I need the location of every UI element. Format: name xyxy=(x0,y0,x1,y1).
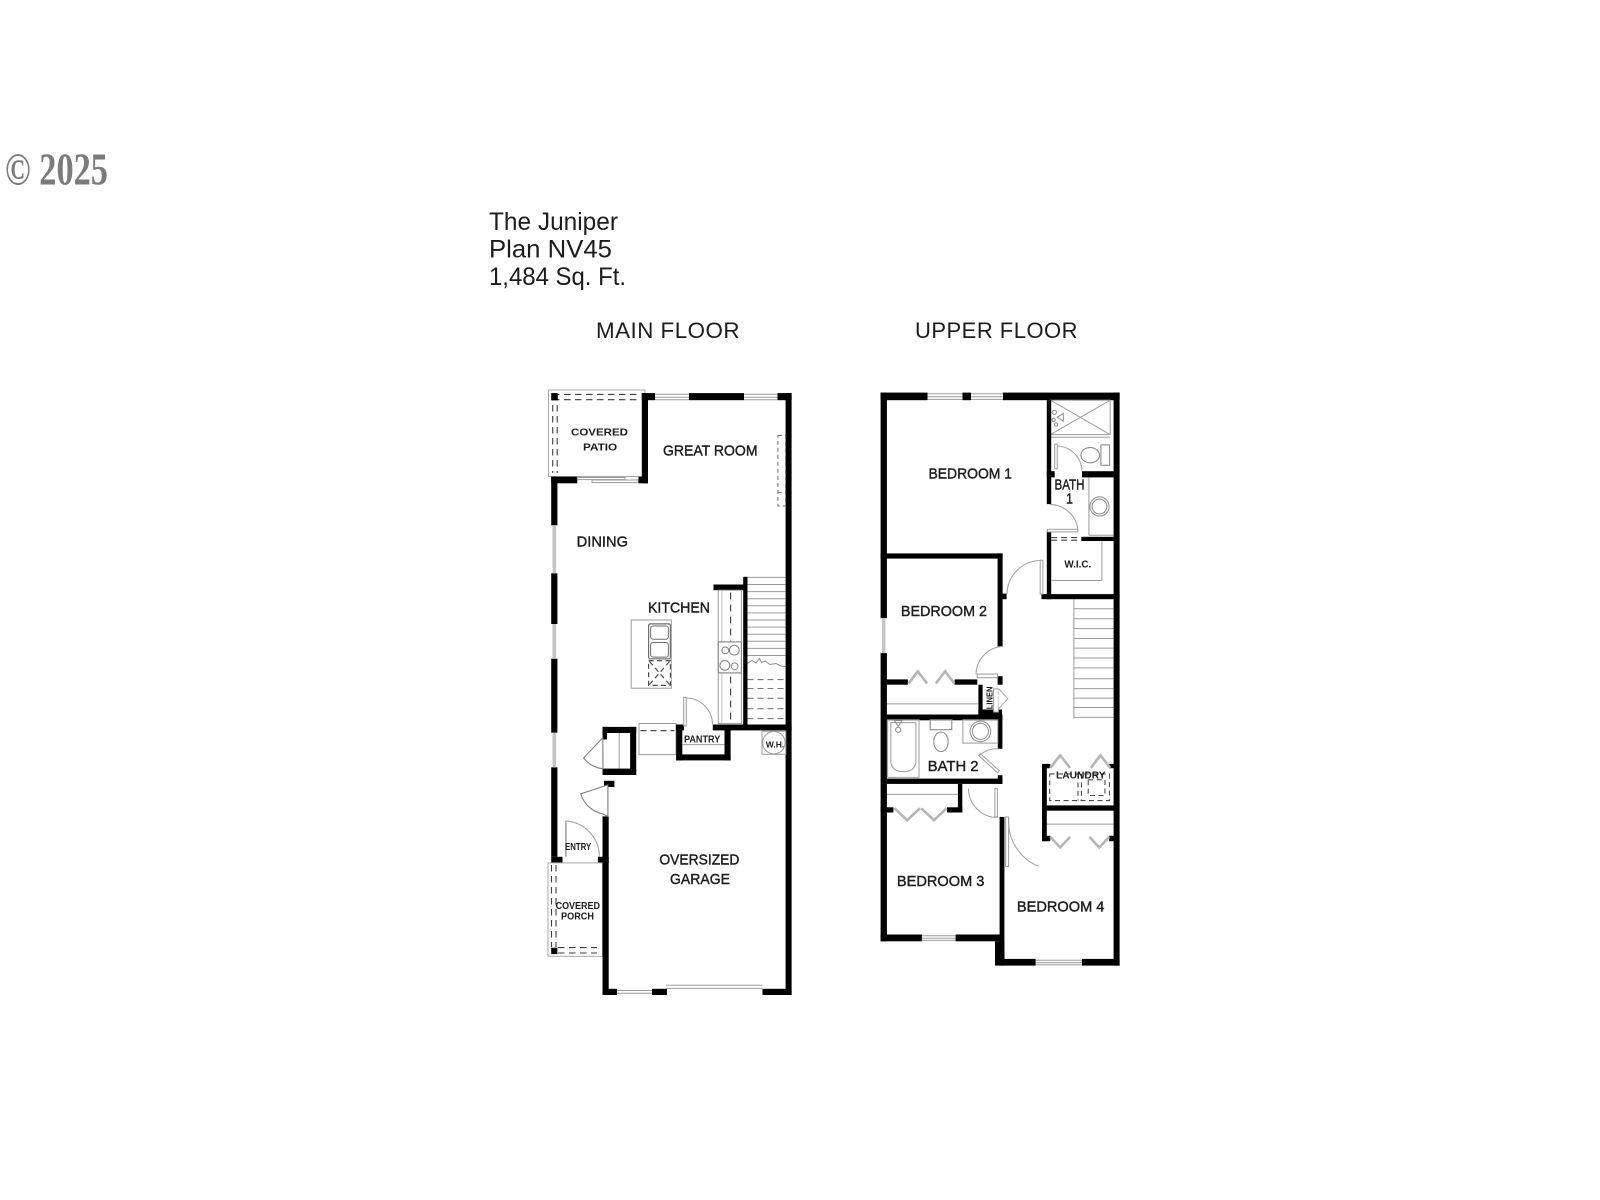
svg-text:BEDROOM 4: BEDROOM 4 xyxy=(1017,899,1105,915)
svg-text:UPPER FLOOR: UPPER FLOOR xyxy=(915,318,1078,343)
svg-text:OVERSIZED: OVERSIZED xyxy=(659,852,739,868)
svg-text:COVERED: COVERED xyxy=(571,428,628,439)
svg-text:LAUNDRY: LAUNDRY xyxy=(1056,771,1106,782)
svg-text:The Juniper: The Juniper xyxy=(489,208,618,236)
svg-text:W.H.: W.H. xyxy=(766,740,785,750)
svg-text:BATH 2: BATH 2 xyxy=(928,759,979,775)
svg-text:PATIO: PATIO xyxy=(583,442,617,453)
svg-text:DINING: DINING xyxy=(577,534,628,550)
svg-text:LINEN: LINEN xyxy=(984,687,994,710)
svg-text:BEDROOM 1: BEDROOM 1 xyxy=(929,467,1013,483)
svg-text:ENTRY: ENTRY xyxy=(565,842,592,853)
svg-text:1,484 Sq. Ft.: 1,484 Sq. Ft. xyxy=(489,263,626,291)
svg-text:GARAGE: GARAGE xyxy=(670,872,730,888)
svg-text:W.I.C.: W.I.C. xyxy=(1064,560,1091,571)
svg-text:1: 1 xyxy=(1066,491,1073,507)
svg-text:© 2025: © 2025 xyxy=(5,145,108,195)
svg-text:MAIN FLOOR: MAIN FLOOR xyxy=(596,318,740,343)
svg-text:PANTRY: PANTRY xyxy=(684,734,721,745)
svg-text:KITCHEN: KITCHEN xyxy=(648,601,710,617)
svg-text:COVERED: COVERED xyxy=(556,901,600,912)
svg-text:BEDROOM 2: BEDROOM 2 xyxy=(901,604,987,620)
svg-text:GREAT ROOM: GREAT ROOM xyxy=(663,444,758,460)
svg-text:Plan NV45: Plan NV45 xyxy=(489,236,612,264)
svg-text:BEDROOM 3: BEDROOM 3 xyxy=(897,874,985,890)
svg-text:PORCH: PORCH xyxy=(561,912,594,923)
